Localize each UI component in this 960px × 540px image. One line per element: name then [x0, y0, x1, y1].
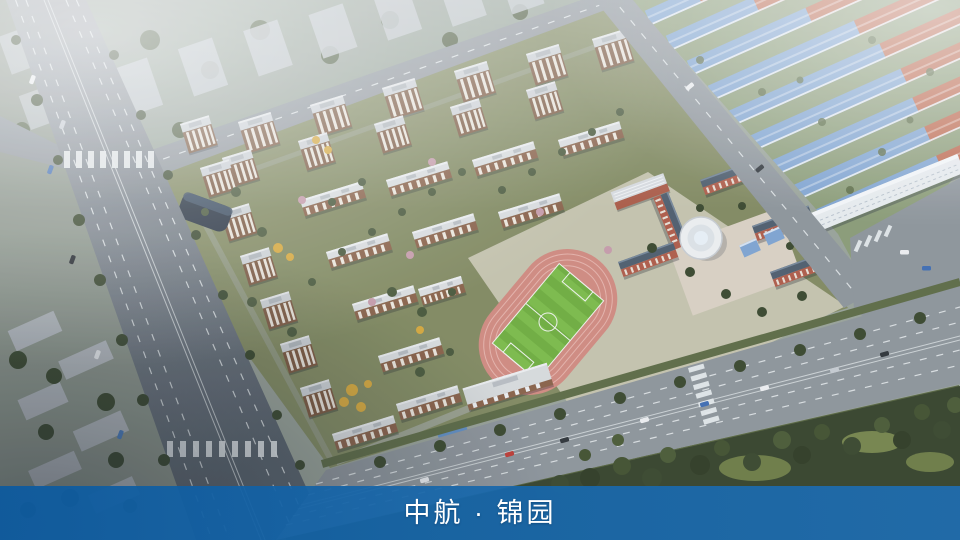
aerial-render-svg [0, 0, 960, 540]
title-banner: 中航 · 锦园 [0, 486, 960, 540]
slide: 中航 · 锦园 [0, 0, 960, 540]
fog-overlay [0, 0, 960, 540]
project-title: 中航 · 锦园 [404, 486, 557, 540]
